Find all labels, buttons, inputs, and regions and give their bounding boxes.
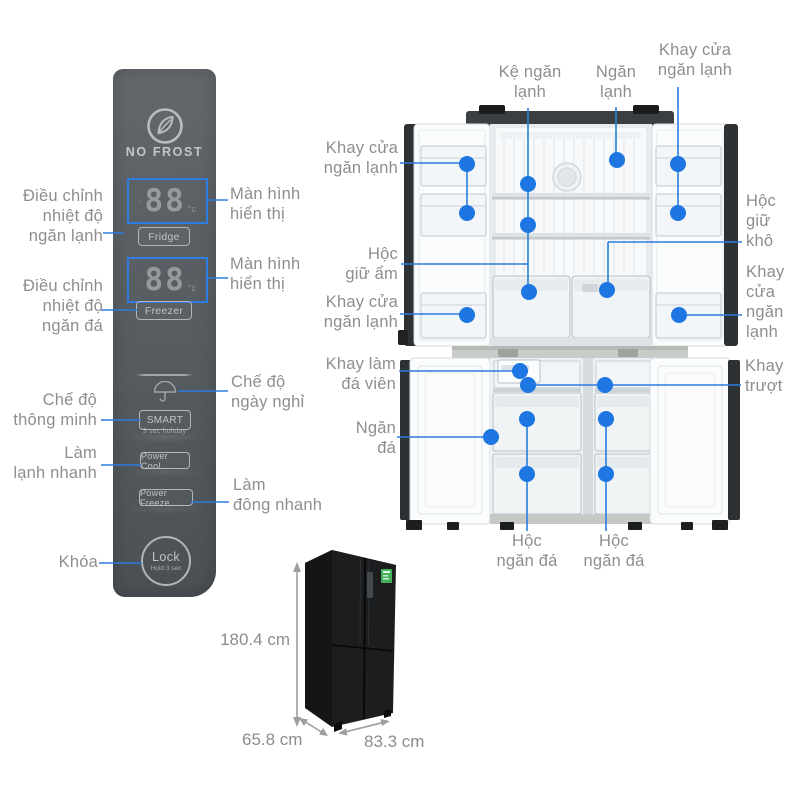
label-freezer-temp-adjust: Điều chỉnh nhiệt độ ngăn đá: [8, 276, 103, 336]
callout-dots: [459, 152, 687, 482]
label-slide-tray: Khay trượt: [745, 356, 783, 396]
label-display-bottom: Màn hình hiển thị: [230, 254, 300, 294]
label-holiday-mode: Chế độ ngày nghỉ: [231, 372, 304, 412]
height-dimension: 180.4 cm: [210, 630, 290, 650]
label-fridge-compartment: Ngăn lạnh: [585, 62, 647, 102]
label-door-tray-right: Khay cửa ngăn lạnh: [746, 262, 784, 342]
label-fridge-shelf: Kệ ngăn lạnh: [490, 62, 570, 102]
label-door-tray-left: Khay cửa ngăn lạnh: [300, 138, 398, 178]
width-dimension: 83.3 cm: [364, 732, 424, 752]
depth-dimension: 65.8 cm: [242, 730, 302, 750]
label-freezer-compartment: Ngăn đá: [330, 418, 396, 458]
label-humidity-box: Hộc giữ ẩm: [320, 244, 398, 284]
callout-lines: [0, 0, 800, 800]
label-dry-box: Hộc giữ khô: [746, 191, 776, 251]
label-smart-mode: Chế độ thông minh: [0, 390, 97, 430]
label-quick-cool: Làm lạnh nhanh: [0, 443, 97, 483]
label-ice-tray: Khay làm đá viên: [306, 354, 396, 394]
label-quick-freeze: Làm đông nhanh: [233, 475, 322, 515]
label-door-tray-left-lower: Khay cửa ngăn lạnh: [300, 292, 398, 332]
label-freezer-box-right: Hộc ngăn đá: [574, 531, 654, 571]
label-door-tray-top-right: Khay cửa ngăn lạnh: [650, 40, 740, 80]
label-lock: Khóa: [20, 552, 98, 572]
label-display-top: Màn hình hiển thị: [230, 184, 300, 224]
label-freezer-box-left: Hộc ngăn đá: [487, 531, 567, 571]
label-fridge-temp-adjust: Điều chỉnh nhiệt độ ngăn lạnh: [8, 186, 103, 246]
product-diagram: NO FROST - 88 °c Fridge - 88 °c Freezer …: [0, 0, 800, 800]
